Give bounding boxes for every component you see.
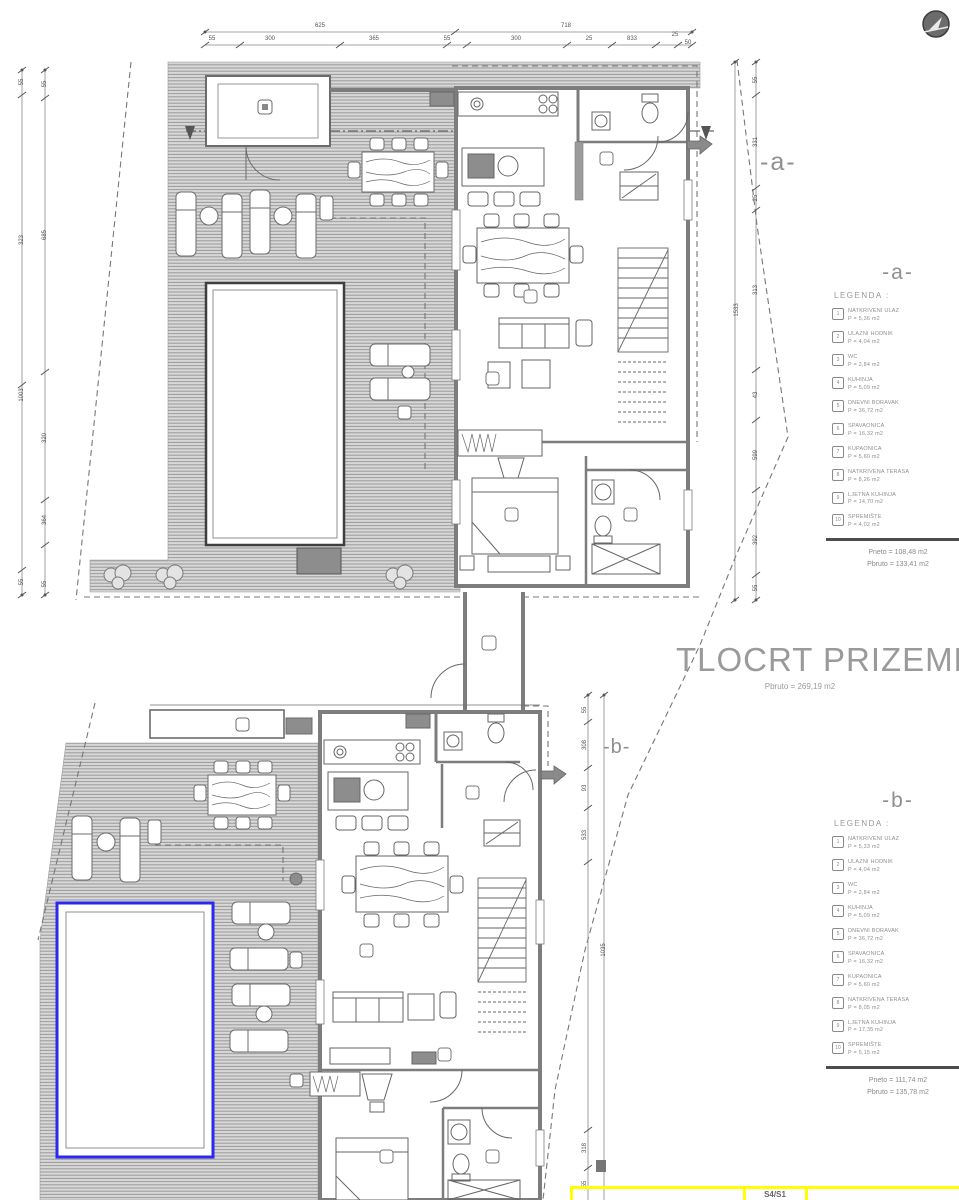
legend-b-heading: LEGENDA :	[834, 819, 959, 828]
legend-divider	[826, 538, 959, 541]
room-number-badge: 2	[832, 331, 844, 343]
legend-item: 1 NATKRIVENI ULAZ P = 5,36 m2	[832, 308, 959, 324]
dimension-label: 55	[19, 79, 25, 86]
dimension-label: 93	[582, 785, 588, 792]
page-subtitle: Pbruto = 269,19 m2	[700, 682, 900, 691]
legend-b-bruto: Pbruto = 135,78 m2	[832, 1087, 959, 1098]
legend-item: 2 ULAZNI HODNIK P = 4,04 m2	[832, 859, 959, 875]
dimension-label: 625	[315, 23, 325, 29]
dimension-label: 55	[753, 77, 759, 84]
legend-a-heading: LEGENDA :	[834, 291, 959, 300]
shelf-a	[620, 172, 658, 200]
room-number-badge: 10	[832, 514, 844, 526]
room-area: P = 4,04 m2	[848, 867, 880, 873]
room-number-badge: 7	[832, 446, 844, 458]
room-area: P = 16,32 m2	[848, 959, 883, 965]
room-name: DNEVNI BORAVAK	[848, 928, 899, 934]
dimension-label: 320	[42, 433, 48, 443]
legend-item-text: KUHINJA P = 5,09 m2	[848, 905, 880, 921]
room-area: P = 8,26 m2	[848, 477, 880, 483]
legend-item-text: NATKRIVENA TERASA P = 8,26 m2	[848, 469, 909, 485]
room-area: P = 8,05 m2	[848, 1005, 880, 1011]
legend-item-text: KUPAONICA P = 5,60 m2	[848, 974, 882, 990]
room-name: LJETNA KUHINJA	[848, 1020, 896, 1026]
legend-item-text: KUPAONICA P = 5,60 m2	[848, 446, 882, 462]
legend-item-text: NATKRIVENI ULAZ P = 5,36 m2	[848, 308, 899, 324]
room-area: P = 5,60 m2	[848, 454, 880, 460]
room-area: P = 36,72 m2	[848, 408, 883, 414]
legend-item-text: KUHINJA P = 5,09 m2	[848, 377, 880, 393]
room-name: NATKRIVENA TERASA	[848, 997, 909, 1003]
legend-item-text: NATKRIVENI ULAZ P = 5,33 m2	[848, 836, 899, 852]
room-number-badge: 4	[832, 905, 844, 917]
dimension-label: 533	[582, 830, 588, 840]
room-name: WC	[848, 882, 858, 888]
dimension-label: 364	[42, 515, 48, 525]
room-number-badge: 9	[832, 492, 844, 504]
pool-b	[57, 903, 213, 1157]
room-area: P = 5,09 m2	[848, 913, 880, 919]
room-number-badge: 5	[832, 928, 844, 940]
legend-b-marker: -b-	[832, 790, 959, 811]
dimension-label: 55	[582, 707, 588, 714]
room-name: KUHINJA	[848, 377, 873, 383]
legend-item-text: LJETNA KUHINJA P = 17,35 m2	[848, 1020, 896, 1036]
floor-plan-drawing	[0, 0, 959, 1200]
legend-item: 7 KUPAONICA P = 5,60 m2	[832, 446, 959, 462]
dimension-label: 55	[42, 81, 48, 88]
legend-a-bruto: Pbruto = 133,41 m2	[832, 559, 959, 570]
legend-item-text: ULAZNI HODNIK P = 4,04 m2	[848, 331, 893, 347]
legend-item-text: DNEVNI BORAVAK P = 36,72 m2	[848, 400, 899, 416]
room-area: P = 2,84 m2	[848, 362, 880, 368]
entry-arrow-b	[541, 766, 566, 784]
legend-b-neto: Pneto = 111,74 m2	[832, 1075, 959, 1086]
room-name: DNEVNI BORAVAK	[848, 400, 899, 406]
room-name: NATKRIVENI ULAZ	[848, 308, 899, 314]
page-title: TLOCRT PRIZEMLJA	[676, 641, 959, 679]
legend-item-text: LJETNA KUHINJA P = 14,70 m2	[848, 492, 896, 508]
legend-item-text: NATKRIVENA TERASA P = 8,05 m2	[848, 997, 909, 1013]
legend-item: 9 LJETNA KUHINJA P = 17,35 m2	[832, 1020, 959, 1036]
legend-item: 3 WC P = 2,84 m2	[832, 882, 959, 898]
legend-item: 7 KUPAONICA P = 5,60 m2	[832, 974, 959, 990]
room-number-badge: 6	[832, 951, 844, 963]
title-block-border	[570, 1188, 573, 1200]
room-number-badge: 8	[832, 469, 844, 481]
room-number-badge: 3	[832, 354, 844, 366]
room-number-badge: 5	[832, 400, 844, 412]
legend-item: 10 SPREMIŠTE P = 5,15 m2	[832, 1042, 959, 1058]
dimension-label: 55	[19, 579, 25, 586]
legend-item: 8 NATKRIVENA TERASA P = 8,26 m2	[832, 469, 959, 485]
dimension-label: 1035	[601, 943, 607, 956]
dimension-label: 55	[42, 581, 48, 588]
title-block-border	[743, 1188, 746, 1200]
room-number-badge: 9	[832, 1020, 844, 1032]
legend-item-text: ULAZNI HODNIK P = 4,04 m2	[848, 859, 893, 875]
dimension-label: 300	[265, 36, 275, 42]
room-area: P = 5,36 m2	[848, 316, 880, 322]
legend-item-text: SPREMIŠTE P = 5,15 m2	[848, 1042, 882, 1058]
room-area: P = 16,32 m2	[848, 431, 883, 437]
room-number-badge: 6	[832, 423, 844, 435]
legend-b: -b- LEGENDA : 1 NATKRIVENI ULAZ P = 5,33…	[832, 790, 959, 1098]
room-number-badge: 3	[832, 882, 844, 894]
dimension-label: 323	[19, 235, 25, 245]
room-name: WC	[848, 354, 858, 360]
north-arrow-icon	[923, 11, 949, 37]
legend-item: 1 NATKRIVENI ULAZ P = 5,33 m2	[832, 836, 959, 852]
room-name: SPREMIŠTE	[848, 514, 882, 520]
dimension-label: 365	[369, 36, 379, 42]
dimension-label: 318	[582, 1143, 588, 1153]
dimension-label: 55	[753, 585, 759, 592]
room-name: KUPAONICA	[848, 446, 882, 452]
room-area: P = 4,04 m2	[848, 339, 880, 345]
desk-a	[462, 148, 544, 206]
room-number-badge: 1	[832, 836, 844, 848]
dimension-label: 300	[511, 36, 521, 42]
room-name: KUHINJA	[848, 905, 873, 911]
title-block-border	[805, 1188, 808, 1200]
legend-item-text: WC P = 2,84 m2	[848, 354, 880, 370]
dimension-label: 25	[586, 36, 593, 42]
room-area: P = 2,84 m2	[848, 890, 880, 896]
room-name: ULAZNI HODNIK	[848, 331, 893, 337]
dimension-label: 308	[582, 740, 588, 750]
room-name: NATKRIVENI ULAZ	[848, 836, 899, 842]
dimension-label: 331	[753, 137, 759, 147]
room-number-badge: 4	[832, 377, 844, 389]
room-number-badge: 2	[832, 859, 844, 871]
dimension-label: 25	[672, 32, 679, 38]
legend-item-text: DNEVNI BORAVAK P = 36,72 m2	[848, 928, 899, 944]
legend-item-text: SPAVAONICA P = 16,32 m2	[848, 951, 885, 967]
dimension-label: 50	[685, 40, 692, 46]
room-area: P = 5,09 m2	[848, 385, 880, 391]
floor-plan-sheet: -a- -b- TLOCRT PRIZEMLJA Pbruto = 269,19…	[0, 0, 959, 1200]
room-number-badge: 8	[832, 997, 844, 1009]
dimension-label: 685	[42, 230, 48, 240]
legend-item-text: WC P = 2,84 m2	[848, 882, 880, 898]
pool-a	[206, 283, 344, 574]
desk-b	[328, 772, 408, 830]
dimension-label: 1003	[19, 388, 25, 401]
dimension-label: 1533	[734, 303, 740, 316]
section-label-a: -a-	[760, 148, 797, 177]
legend-item: 5 DNEVNI BORAVAK P = 36,72 m2	[832, 400, 959, 416]
room-area: P = 17,35 m2	[848, 1027, 883, 1033]
legend-item-text: SPREMIŠTE P = 4,02 m2	[848, 514, 882, 530]
dimension-label: 392	[753, 535, 759, 545]
legend-a: -a- LEGENDA : 1 NATKRIVENI ULAZ P = 5,36…	[832, 262, 959, 570]
dimension-label: 599	[753, 450, 759, 460]
room-area: P = 14,70 m2	[848, 499, 883, 505]
room-name: NATKRIVENA TERASA	[848, 469, 909, 475]
room-name: KUPAONICA	[848, 974, 882, 980]
section-label-b: -b-	[603, 736, 630, 759]
legend-item: 6 SPAVAONICA P = 16,32 m2	[832, 423, 959, 439]
dimension-label: 55	[444, 36, 451, 42]
room-name: ULAZNI HODNIK	[848, 859, 893, 865]
room-area: P = 5,15 m2	[848, 1050, 880, 1056]
room-number-badge: 7	[832, 974, 844, 986]
legend-item: 6 SPAVAONICA P = 16,32 m2	[832, 951, 959, 967]
dimension-label: 833	[627, 36, 637, 42]
legend-a-marker: -a-	[832, 262, 959, 283]
legend-divider	[826, 1066, 959, 1069]
dimension-label: 55	[209, 36, 216, 42]
shelf-b	[484, 820, 520, 846]
legend-item: 10 SPREMIŠTE P = 4,02 m2	[832, 514, 959, 530]
dimension-label: 718	[561, 23, 571, 29]
room-number-badge: 1	[832, 308, 844, 320]
room-area: P = 5,60 m2	[848, 982, 880, 988]
legend-item-text: SPAVAONICA P = 16,32 m2	[848, 423, 885, 439]
legend-a-neto: Pneto = 108,48 m2	[832, 547, 959, 558]
room-area: P = 5,33 m2	[848, 844, 880, 850]
pool-a-steps	[297, 548, 341, 574]
room-area: P = 36,72 m2	[848, 936, 883, 942]
legend-item: 5 DNEVNI BORAVAK P = 36,72 m2	[832, 928, 959, 944]
legend-item: 4 KUHINJA P = 5,09 m2	[832, 377, 959, 393]
room-name: SPAVAONICA	[848, 951, 885, 957]
room-number-badge: 10	[832, 1042, 844, 1054]
legend-item: 2 ULAZNI HODNIK P = 4,04 m2	[832, 331, 959, 347]
dimension-label: 43	[753, 392, 759, 399]
legend-item: 8 NATKRIVENA TERASA P = 8,05 m2	[832, 997, 959, 1013]
legend-item: 3 WC P = 2,84 m2	[832, 354, 959, 370]
dimension-label: 25	[753, 195, 759, 202]
dimension-label: 313	[753, 285, 759, 295]
corridor	[431, 592, 523, 712]
legend-b-items: 1 NATKRIVENI ULAZ P = 5,33 m2 2 ULAZNI H…	[832, 836, 959, 1058]
legend-a-items: 1 NATKRIVENI ULAZ P = 5,36 m2 2 ULAZNI H…	[832, 308, 959, 530]
entry-arrow-a	[687, 136, 712, 154]
room-name: SPREMIŠTE	[848, 1042, 882, 1048]
legend-item: 4 KUHINJA P = 5,09 m2	[832, 905, 959, 921]
room-name: LJETNA KUHINJA	[848, 492, 896, 498]
legend-item: 9 LJETNA KUHINJA P = 14,70 m2	[832, 492, 959, 508]
room-area: P = 4,02 m2	[848, 522, 880, 528]
room-name: SPAVAONICA	[848, 423, 885, 429]
title-block-cell-label: S4/S1	[747, 1190, 803, 1199]
